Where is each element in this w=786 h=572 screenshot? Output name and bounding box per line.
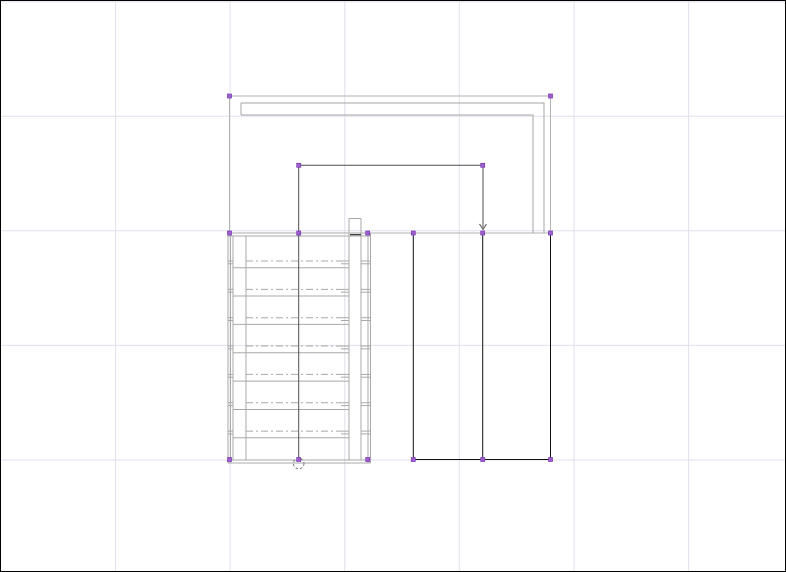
selection-grip[interactable] bbox=[481, 163, 485, 167]
selection-grip[interactable] bbox=[297, 163, 301, 167]
selection-grip[interactable] bbox=[549, 231, 553, 235]
drawing-canvas[interactable] bbox=[0, 0, 786, 572]
selection-grip[interactable] bbox=[366, 231, 370, 235]
selection-grip[interactable] bbox=[481, 231, 485, 235]
selection-grip[interactable] bbox=[228, 458, 232, 462]
selection-grip[interactable] bbox=[411, 458, 415, 462]
selection-grip[interactable] bbox=[481, 458, 485, 462]
selection-grip[interactable] bbox=[549, 94, 553, 98]
selection-grip[interactable] bbox=[297, 458, 301, 462]
selection-grip[interactable] bbox=[549, 458, 553, 462]
selection-grip[interactable] bbox=[411, 231, 415, 235]
selection-grip[interactable] bbox=[297, 231, 301, 235]
app-viewport bbox=[0, 0, 786, 572]
selection-grip[interactable] bbox=[366, 458, 370, 462]
selection-grip[interactable] bbox=[228, 94, 232, 98]
selection-grip[interactable] bbox=[228, 231, 232, 235]
canvas-background bbox=[0, 0, 786, 572]
